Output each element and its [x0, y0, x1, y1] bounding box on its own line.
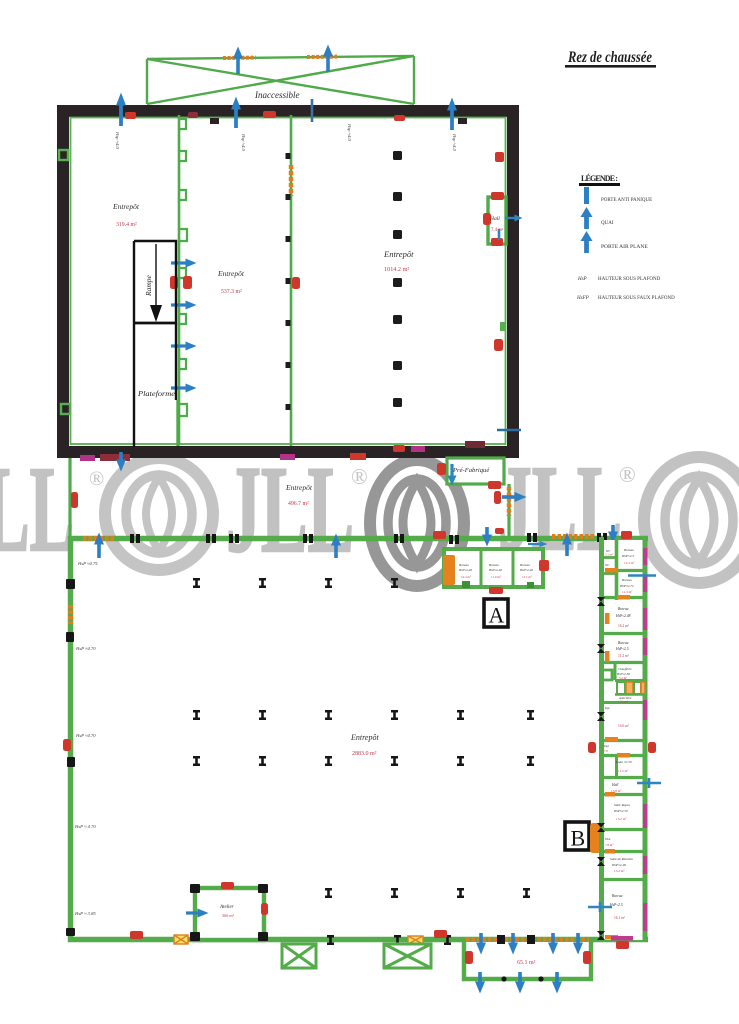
svg-text:Labo ≈2.50: Labo ≈2.50 [615, 760, 632, 764]
svg-text:PORTE AIR PLANE: PORTE AIR PLANE [601, 244, 648, 250]
svg-text:Dgt: Dgt [604, 706, 610, 710]
svg-text:Chaufférie: Chaufférie [618, 667, 632, 671]
svg-text:Entrepôt: Entrepôt [383, 249, 414, 259]
svg-text:10.4 m²: 10.4 m² [461, 575, 471, 579]
svg-text:HsP ≈4.70: HsP ≈4.70 [75, 733, 96, 738]
svg-text:®: ® [89, 468, 104, 490]
svg-text:11.5 m²: 11.5 m² [618, 769, 628, 773]
svg-text:Hsp ≈4.0: Hsp ≈4.0 [115, 131, 120, 150]
svg-text:HsP≈2.48: HsP≈2.48 [611, 863, 626, 867]
svg-text:5.2 m²: 5.2 m² [619, 676, 627, 680]
svg-text:Hsp ≈4.0: Hsp ≈4.0 [452, 133, 457, 152]
svg-text:Hall: Hall [489, 216, 500, 222]
svg-text:HsP≈2.72: HsP≈2.72 [619, 584, 634, 588]
svg-text:1014.2 m²: 1014.2 m² [384, 266, 409, 273]
svg-text:Salle de Réunion: Salle de Réunion [610, 857, 633, 861]
svg-text:Entrepôt: Entrepôt [285, 483, 313, 492]
svg-text:Rez de chaussée: Rez de chaussée [567, 49, 652, 66]
svg-text:Entrepôt: Entrepôt [350, 733, 379, 742]
svg-text:Hall: Hall [611, 783, 618, 787]
svg-text:LÉGENDE :: LÉGENDE : [581, 173, 618, 183]
svg-text:HsP≈2.5: HsP≈2.5 [621, 554, 634, 558]
svg-text:QUAI: QUAI [601, 221, 614, 226]
svg-text:Plateforme: Plateforme [137, 390, 175, 398]
svg-text:Pré-Fabriqué: Pré-Fabriqué [452, 467, 490, 474]
svg-text:Bureau: Bureau [459, 563, 469, 567]
svg-text:A: A [489, 603, 505, 628]
svg-text:11.0 m²: 11.0 m² [491, 575, 501, 579]
svg-text:HsP ≈ 3.85: HsP ≈ 3.85 [74, 911, 96, 916]
svg-text:2883.0 m²: 2883.0 m² [352, 751, 377, 757]
svg-text:366 m²: 366 m² [222, 913, 235, 918]
svg-text:537.3 m²: 537.3 m² [221, 289, 242, 295]
svg-text:HsP ≈4.75: HsP ≈4.75 [77, 561, 98, 566]
svg-text:12.3 m²: 12.3 m² [624, 561, 634, 565]
svg-text:Bureau: Bureau [612, 894, 623, 898]
svg-text:5.1 m²: 5.1 m² [605, 553, 613, 557]
svg-text:HsP ≈ 4.70: HsP ≈ 4.70 [74, 824, 96, 829]
svg-text:HsP≈2.48: HsP≈2.48 [615, 614, 631, 618]
svg-text:14.6 m²: 14.6 m² [618, 724, 629, 728]
svg-text:HsP≈2.48: HsP≈2.48 [488, 568, 502, 572]
svg-text:HsP≈2.48: HsP≈2.48 [519, 568, 533, 572]
svg-text:7.8 m²: 7.8 m² [605, 843, 613, 847]
svg-text:7.8: 7.8 [604, 749, 608, 753]
svg-text:11.3 m²: 11.3 m² [622, 590, 632, 594]
svg-text:Inaccessible: Inaccessible [254, 90, 299, 100]
svg-text:HsP≈2.48: HsP≈2.48 [458, 568, 472, 572]
svg-text:13.2 m²: 13.2 m² [614, 869, 624, 873]
svg-text:Rampe: Rampe [144, 275, 153, 297]
svg-text:HsFP: HsFP [576, 296, 589, 301]
svg-text:7.4 m²: 7.4 m² [491, 227, 504, 233]
svg-text:Atelier: Atelier [219, 905, 234, 910]
svg-text:®: ® [619, 462, 636, 487]
svg-text:Bureau: Bureau [520, 563, 530, 567]
svg-text:5.1 m²: 5.1 m² [620, 700, 628, 704]
svg-text:Bureau: Bureau [624, 548, 634, 552]
svg-text:Hsp ≈4.0: Hsp ≈4.0 [347, 123, 352, 142]
svg-text:HsP≈2.50: HsP≈2.50 [613, 809, 628, 813]
svg-text:Bureau: Bureau [618, 607, 629, 611]
svg-text:16.1 m²: 16.1 m² [614, 916, 625, 920]
svg-text:HsP≈2.5: HsP≈2.5 [615, 647, 629, 651]
svg-text:Salle Repos: Salle Repos [614, 803, 631, 807]
svg-text:496.7 m²: 496.7 m² [288, 501, 309, 507]
svg-text:Bureau: Bureau [618, 641, 629, 645]
svg-text:B: B [571, 826, 586, 851]
svg-text:Entrepôt: Entrepôt [217, 269, 245, 278]
svg-text:Hsp ≈4.0: Hsp ≈4.0 [241, 133, 246, 152]
svg-text:319.4 m²: 319.4 m² [116, 222, 137, 228]
svg-text:16.2 m²: 16.2 m² [618, 624, 629, 628]
svg-text:11.2 m²: 11.2 m² [618, 654, 629, 658]
svg-text:Dgt: Dgt [603, 744, 609, 748]
svg-text:Bureau: Bureau [489, 563, 499, 567]
svg-text:65.1 m²: 65.1 m² [517, 960, 536, 966]
svg-text:JLL: JLL [0, 442, 74, 577]
svg-text:HAUTEUR SOUS PLAFOND: HAUTEUR SOUS PLAFOND [598, 277, 661, 282]
svg-text:Bureau: Bureau [622, 578, 632, 582]
svg-text:13.2 m²: 13.2 m² [616, 817, 626, 821]
svg-text:PORTE ANTI PANIQUE: PORTE ANTI PANIQUE [601, 198, 652, 203]
svg-text:12.1 m²: 12.1 m² [522, 575, 532, 579]
svg-text:HAUTEUR SOUS FAUX PLAFOND: HAUTEUR SOUS FAUX PLAFOND [598, 296, 675, 301]
svg-text:Entrepôt: Entrepôt [112, 202, 140, 211]
svg-text:HsP ≈4.70: HsP ≈4.70 [75, 646, 96, 651]
svg-text:®: ® [351, 464, 368, 489]
svg-text:HsP: HsP [577, 277, 587, 282]
